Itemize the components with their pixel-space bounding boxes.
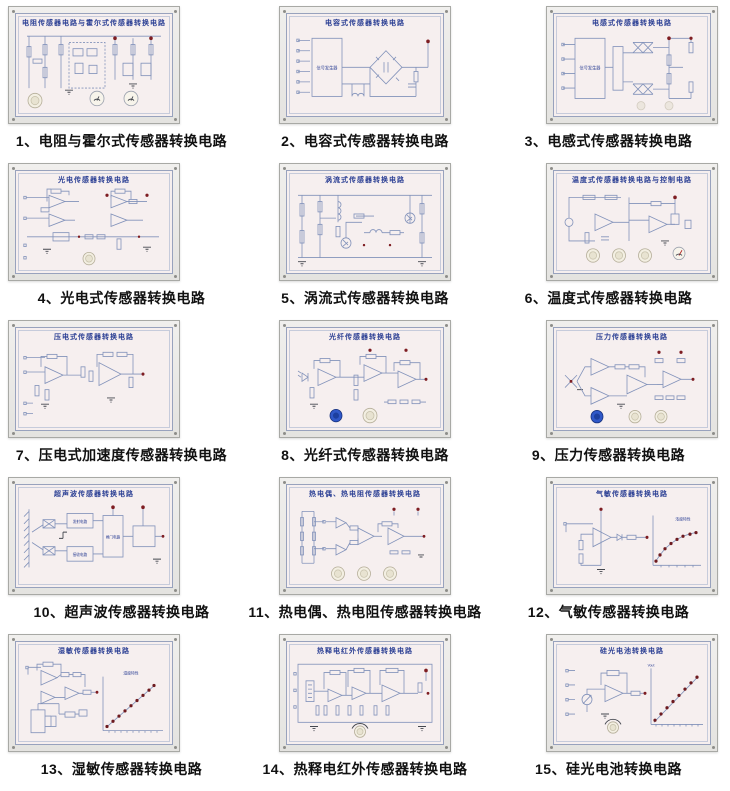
knob-2[interactable] bbox=[613, 249, 626, 262]
screw-icons bbox=[283, 324, 286, 327]
circuit-schematic-eddy-current bbox=[290, 187, 440, 270]
circuit-schematic-gas: 浓度特性 bbox=[557, 501, 707, 584]
knob-1[interactable] bbox=[332, 567, 345, 580]
signal-generator-label: 信号发生器 bbox=[317, 64, 339, 71]
meter-left bbox=[90, 91, 104, 106]
white-knob[interactable] bbox=[363, 408, 377, 423]
circuit-panel-15: 硅光电池转换电路 V bbox=[546, 634, 718, 752]
panel-cell-9: 压力传感器转换电路 bbox=[487, 320, 730, 477]
svg-text:发射电路: 发射电路 bbox=[73, 519, 88, 524]
panel-title: 压力传感器转换电路 bbox=[557, 331, 707, 344]
circuit-panel-12: 气敏传感器转换电路 bbox=[546, 477, 718, 595]
panel-caption: 4、光电式传感器转换电路 bbox=[0, 288, 243, 308]
panel-caption: 2、电容式传感器转换电路 bbox=[243, 131, 487, 151]
gate-block: 闸门电路 bbox=[103, 516, 123, 558]
screw-icons bbox=[550, 324, 553, 327]
panel-title: 涡流式传感器转换电路 bbox=[290, 174, 440, 187]
transmit-block: 发射电路 bbox=[67, 513, 93, 528]
panel-cell-6: 温度式传感器转换电路与控制电路 bbox=[487, 163, 730, 320]
panel-title: 光电传感器转换电路 bbox=[19, 174, 169, 187]
knob-3[interactable] bbox=[639, 249, 652, 262]
circuit-schematic-inductive: 信号发生器 bbox=[557, 30, 707, 113]
light-knob[interactable] bbox=[605, 719, 621, 733]
panel-cell-10: 超声波传感器转换电路 发射电路 接收电路 bbox=[0, 477, 243, 634]
circuit-schematic-pyroelectric bbox=[290, 658, 440, 741]
screw-icons bbox=[550, 167, 553, 170]
panel-caption: 11、热电偶、热电阻传感器转换电路 bbox=[243, 602, 487, 622]
panel-cell-8: 光纤传感器转换电路 bbox=[243, 320, 487, 477]
panel-title: 热释电红外传感器转换电路 bbox=[290, 645, 440, 658]
panel-caption: 12、气敏传感器转换电路 bbox=[487, 602, 730, 622]
panel-caption: 5、涡流式传感器转换电路 bbox=[243, 288, 487, 308]
signal-generator-label: 信号发生器 bbox=[580, 64, 602, 71]
screw-icons bbox=[283, 10, 286, 13]
circuit-schematic-fiber bbox=[290, 344, 440, 427]
circuit-panel-1: 电阻传感器电路与霍尔式传感器转换电路 bbox=[8, 6, 180, 124]
panel-cell-15: 硅光电池转换电路 V bbox=[487, 634, 730, 791]
knob-3[interactable] bbox=[384, 567, 397, 580]
panel-caption: 14、热释电红外传感器转换电路 bbox=[243, 759, 487, 779]
graph-y-label: Vout bbox=[648, 663, 655, 667]
knob-2[interactable] bbox=[358, 567, 371, 580]
circuit-panel-8: 光纤传感器转换电路 bbox=[279, 320, 451, 438]
panel-cell-4: 光电传感器转换电路 bbox=[0, 163, 243, 320]
panel-caption: 10、超声波传感器转换电路 bbox=[0, 602, 243, 622]
response-graph: 浓度特性 bbox=[653, 516, 701, 568]
svg-text:接收电路: 接收电路 bbox=[73, 552, 88, 557]
panel-caption: 7、压电式加速度传感器转换电路 bbox=[0, 445, 243, 465]
screw-icons bbox=[283, 167, 286, 170]
circuit-schematic-resistance-hall bbox=[19, 30, 169, 113]
svg-text:闸门电路: 闸门电路 bbox=[106, 534, 121, 539]
white-knob-2[interactable] bbox=[655, 410, 667, 422]
screw-icons bbox=[12, 167, 15, 170]
circuit-panel-10: 超声波传感器转换电路 发射电路 接收电路 bbox=[8, 477, 180, 595]
receive-block: 接收电路 bbox=[67, 547, 93, 562]
circuit-schematic-ultrasonic: 发射电路 接收电路 闸门电路 bbox=[19, 501, 169, 584]
circuit-panel-6: 温度式传感器转换电路与控制电路 bbox=[546, 163, 718, 281]
panel-title: 电阻传感器电路与霍尔式传感器转换电路 bbox=[19, 17, 169, 30]
screw-icons bbox=[12, 481, 15, 484]
panel-cell-12: 气敏传感器转换电路 bbox=[487, 477, 730, 634]
panel-cell-7: 压电式传感器转换电路 bbox=[0, 320, 243, 477]
graph-label: 浓度特性 bbox=[675, 517, 690, 522]
panel-cell-14: 热释电红外传感器转换电路 bbox=[243, 634, 487, 791]
panel-cell-5: 涡流式传感器转换电路 bbox=[243, 163, 487, 320]
blue-knob[interactable] bbox=[591, 410, 603, 422]
circuit-schematic-humidity: 湿度特性 bbox=[19, 658, 169, 741]
circuit-panel-grid: 电阻传感器电路与霍尔式传感器转换电路 bbox=[0, 0, 730, 791]
screw-icons bbox=[550, 481, 553, 484]
circuit-schematic-temperature bbox=[557, 187, 707, 270]
panel-title: 光纤传感器转换电路 bbox=[290, 331, 440, 344]
screw-icons bbox=[283, 481, 286, 484]
panel-title: 温度式传感器转换电路与控制电路 bbox=[557, 174, 707, 187]
response-graph: Vout bbox=[648, 663, 703, 726]
panel-title: 气敏传感器转换电路 bbox=[557, 488, 707, 501]
panel-title: 硅光电池转换电路 bbox=[557, 645, 707, 658]
panel-title: 电容式传感器转换电路 bbox=[290, 17, 440, 30]
circuit-panel-7: 压电式传感器转换电路 bbox=[8, 320, 180, 438]
circuit-schematic-thermocouple bbox=[290, 501, 440, 584]
power-knob[interactable] bbox=[28, 93, 42, 108]
screw-icons bbox=[550, 10, 553, 13]
circuit-panel-4: 光电传感器转换电路 bbox=[8, 163, 180, 281]
adjust-knob[interactable] bbox=[83, 252, 95, 264]
panel-caption: 9、压力传感器转换电路 bbox=[487, 445, 730, 465]
panel-caption: 6、温度式传感器转换电路 bbox=[487, 288, 730, 308]
screw-icons bbox=[12, 10, 15, 13]
panel-caption: 8、光纤式传感器转换电路 bbox=[243, 445, 487, 465]
circuit-panel-2: 电容式传感器转换电路 信号发生器 bbox=[279, 6, 451, 124]
graph-label: 湿度特性 bbox=[123, 671, 138, 676]
panel-caption: 13、湿敏传感器转换电路 bbox=[0, 759, 243, 779]
screw-icons bbox=[12, 324, 15, 327]
screw-icons bbox=[550, 638, 553, 641]
screw-icons bbox=[283, 638, 286, 641]
panel-cell-1: 电阻传感器电路与霍尔式传感器转换电路 bbox=[0, 6, 243, 163]
panel-title: 热电偶、热电阻传感器转换电路 bbox=[290, 488, 440, 501]
circuit-panel-5: 涡流式传感器转换电路 bbox=[279, 163, 451, 281]
panel-cell-3: 电感式传感器转换电路 信号发生器 bbox=[487, 6, 730, 163]
panel-title: 湿敏传感器转换电路 bbox=[19, 645, 169, 658]
panel-cell-13: 湿敏传感器转换电路 bbox=[0, 634, 243, 791]
circuit-schematic-piezo bbox=[19, 344, 169, 427]
circuit-schematic-photocell: Vout bbox=[557, 658, 707, 741]
circuit-schematic-photoelectric bbox=[19, 187, 169, 270]
circuit-panel-13: 湿敏传感器转换电路 bbox=[8, 634, 180, 752]
panel-caption: 3、电感式传感器转换电路 bbox=[487, 131, 730, 151]
circuit-panel-14: 热释电红外传感器转换电路 bbox=[279, 634, 451, 752]
circuit-panel-11: 热电偶、热电阻传感器转换电路 bbox=[279, 477, 451, 595]
response-graph: 湿度特性 bbox=[103, 671, 163, 733]
panel-title: 电感式传感器转换电路 bbox=[557, 17, 707, 30]
center-knob[interactable] bbox=[352, 723, 368, 737]
panel-title: 超声波传感器转换电路 bbox=[19, 488, 169, 501]
knob-1[interactable] bbox=[587, 249, 600, 262]
panel-caption: 15、硅光电池转换电路 bbox=[487, 759, 730, 779]
meter bbox=[673, 247, 685, 259]
panel-title: 压电式传感器转换电路 bbox=[19, 331, 169, 344]
circuit-panel-3: 电感式传感器转换电路 信号发生器 bbox=[546, 6, 718, 124]
circuit-schematic-capacitive: 信号发生器 bbox=[290, 30, 440, 113]
blue-knob[interactable] bbox=[330, 409, 342, 421]
panel-cell-11: 热电偶、热电阻传感器转换电路 bbox=[243, 477, 487, 634]
white-knob-1[interactable] bbox=[629, 410, 641, 422]
meter-right bbox=[124, 91, 138, 106]
circuit-schematic-pressure bbox=[557, 344, 707, 427]
panel-cell-2: 电容式传感器转换电路 信号发生器 2、电容式传感器转换电路 bbox=[243, 6, 487, 163]
circuit-panel-9: 压力传感器转换电路 bbox=[546, 320, 718, 438]
panel-caption: 1、电阻与霍尔式传感器转换电路 bbox=[0, 131, 243, 151]
screw-icons bbox=[12, 638, 15, 641]
